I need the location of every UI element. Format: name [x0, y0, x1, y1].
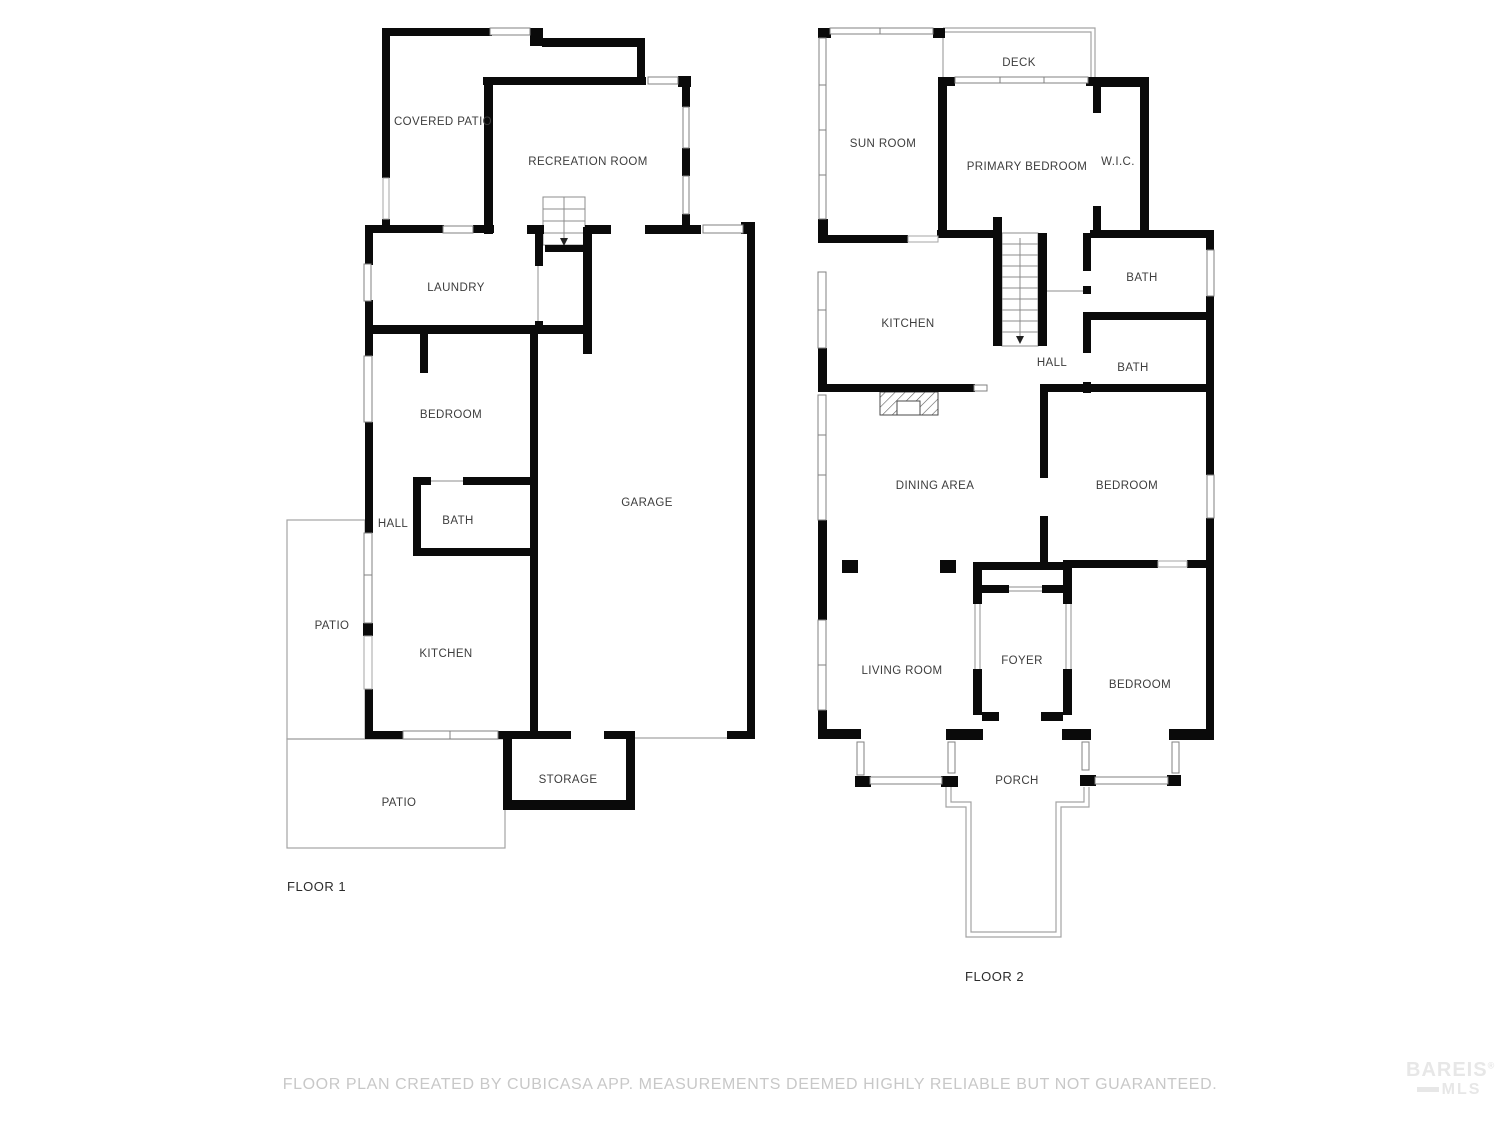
- room-label-sun-room: SUN ROOM: [850, 138, 916, 150]
- disclaimer-text: FLOOR PLAN CREATED BY CUBICASA APP. MEAS…: [0, 1076, 1500, 1094]
- room-label-living-room: LIVING ROOM: [861, 665, 942, 677]
- sunroom-opening: [908, 236, 938, 242]
- floor1-windows: [364, 28, 743, 739]
- kitchen-patio-opening: [364, 636, 372, 689]
- bareis-mls-logo: BAREIS® MLS: [1406, 1060, 1492, 1098]
- logo-registered-mark: ®: [1488, 1060, 1496, 1070]
- room-label-bedroom-mid: BEDROOM: [1096, 480, 1158, 492]
- room-label-bath-lower: BATH: [1117, 362, 1148, 374]
- floor1-stairs: [543, 197, 585, 246]
- room-label-bath-upper: BATH: [1126, 272, 1157, 284]
- room-label-primary-bedroom: PRIMARY BEDROOM: [967, 161, 1088, 173]
- patio-lower-outline: [287, 739, 505, 848]
- porch-steps-outline-inner: [951, 787, 1084, 932]
- floor1-plan: [287, 28, 755, 848]
- room-label-bath-f1: BATH: [442, 515, 473, 527]
- room-label-kitchen-f1: KITCHEN: [419, 648, 472, 660]
- floor-titles: FLOOR 1 FLOOR 2: [287, 879, 1024, 984]
- room-label-wic: W.I.C.: [1101, 156, 1135, 168]
- room-label-storage: STORAGE: [539, 774, 598, 786]
- room-label-recreation-room: RECREATION ROOM: [528, 156, 648, 168]
- stairs-down-arrow: [1016, 336, 1024, 344]
- deck-outline: [943, 28, 1095, 77]
- room-label-kitchen-f2: KITCHEN: [881, 318, 934, 330]
- bedroom-opening: [1158, 561, 1187, 567]
- porch-steps-outline: [946, 787, 1089, 937]
- floor1-title: FLOOR 1: [287, 879, 346, 894]
- room-label-laundry: LAUNDRY: [427, 282, 485, 294]
- fireplace: [880, 392, 938, 415]
- floor2-title: FLOOR 2: [965, 969, 1024, 984]
- room-label-bedroom-lower: BEDROOM: [1109, 679, 1171, 691]
- room-label-foyer: FOYER: [1001, 655, 1043, 667]
- floor2-stairs: [1002, 233, 1038, 346]
- room-label-porch: PORCH: [995, 775, 1039, 787]
- floorplan-page: COVERED PATIO RECREATION ROOM LAUNDRY BE…: [0, 0, 1500, 1125]
- room-label-dining-area: DINING AREA: [896, 480, 975, 492]
- floorplan-canvas: COVERED PATIO RECREATION ROOM LAUNDRY BE…: [0, 0, 1500, 1125]
- logo-sub: MLS: [1442, 1081, 1482, 1098]
- logo-bar: [1417, 1087, 1439, 1092]
- room-label-patio-upper: PATIO: [315, 620, 350, 632]
- room-label-hall-f1: HALL: [378, 518, 409, 530]
- room-label-patio-lower: PATIO: [382, 797, 417, 809]
- room-label-covered-patio: COVERED PATIO: [394, 116, 492, 128]
- room-label-hall-f2: HALL: [1037, 357, 1068, 369]
- patio-opening: [383, 178, 389, 219]
- room-label-bedroom-f1: BEDROOM: [420, 409, 482, 421]
- room-label-garage: GARAGE: [621, 497, 673, 509]
- room-label-deck: DECK: [1002, 57, 1036, 69]
- deck-outline-inner: [943, 32, 1091, 77]
- logo-name: BAREIS: [1406, 1059, 1488, 1081]
